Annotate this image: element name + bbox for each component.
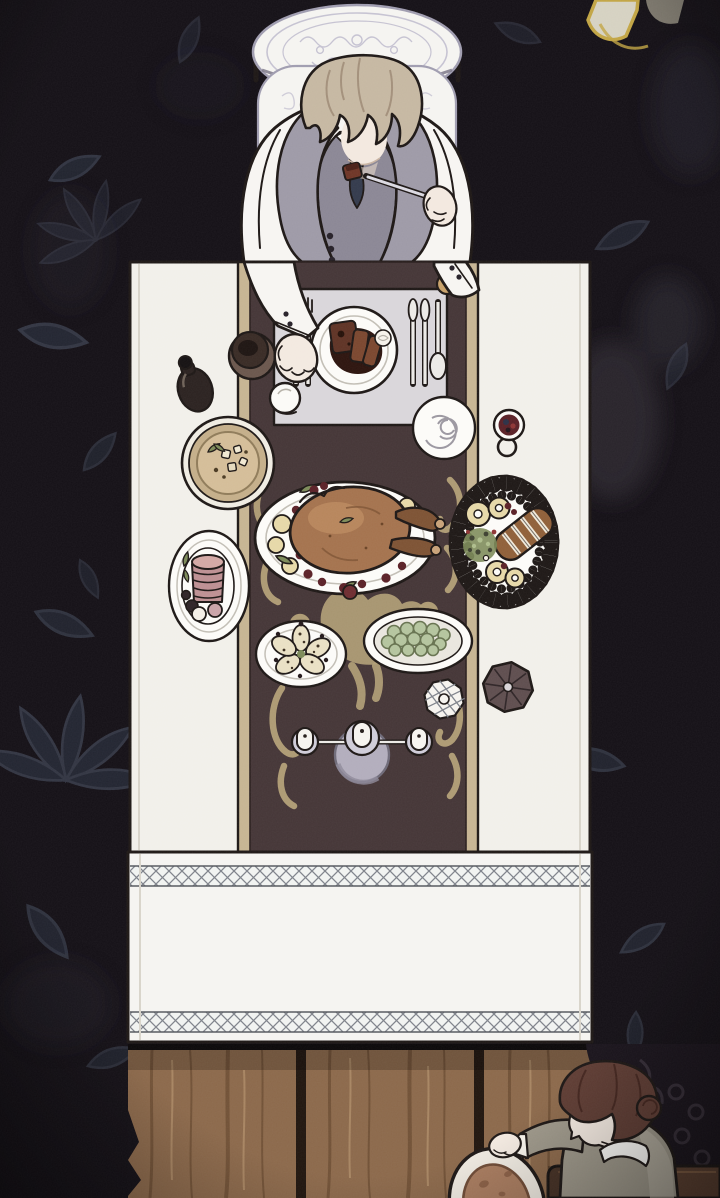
webtoon-panel: Overhead webtoon panel: a fair-haired ma… <box>0 0 720 1198</box>
panel-art <box>0 0 720 1198</box>
vignette-overlay <box>0 0 720 1198</box>
